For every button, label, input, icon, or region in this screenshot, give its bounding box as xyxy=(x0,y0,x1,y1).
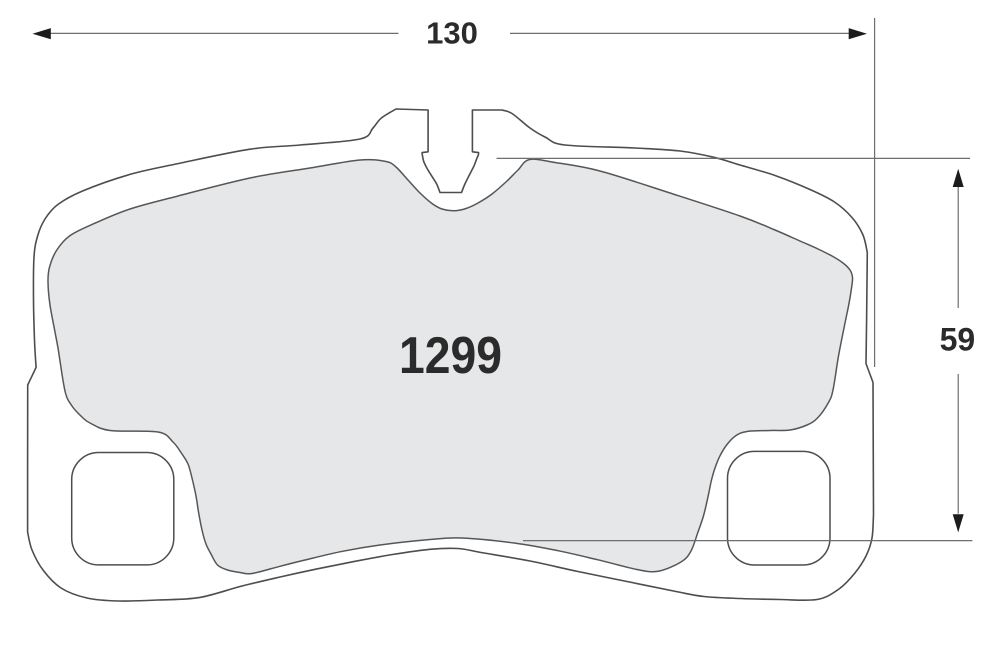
svg-text:1299: 1299 xyxy=(399,327,502,385)
svg-text:130: 130 xyxy=(426,15,478,50)
svg-text:59: 59 xyxy=(940,322,976,358)
